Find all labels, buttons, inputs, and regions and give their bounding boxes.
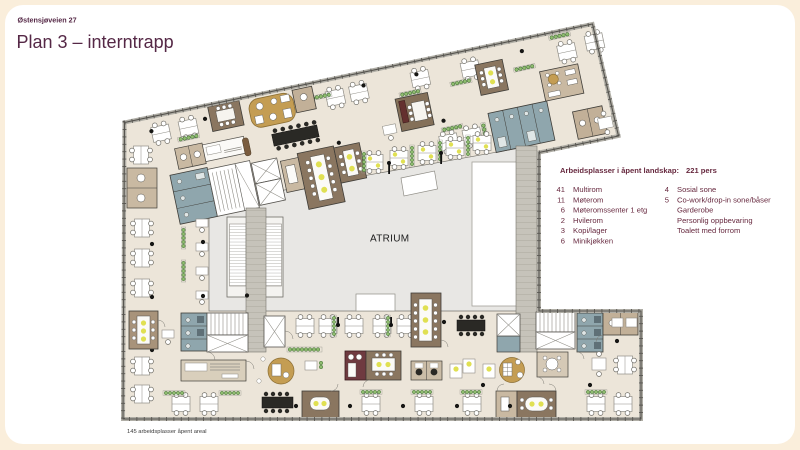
svg-text:5: 5 [665,195,669,204]
svg-text:ATRIUM: ATRIUM [370,234,409,245]
svg-text:41: 41 [557,185,565,194]
svg-text:Hvilerom: Hvilerom [573,216,603,225]
svg-text:6: 6 [561,206,565,215]
svg-text:Østensjøveien 27: Østensjøveien 27 [18,16,77,25]
svg-text:Toalett med forrom: Toalett med forrom [677,226,740,235]
svg-text:2: 2 [561,216,565,225]
svg-text:Garderobe: Garderobe [677,206,713,215]
svg-text:Møteromssenter 1 etg: Møteromssenter 1 etg [573,206,647,215]
svg-text:Plan 3 – interntrapp: Plan 3 – interntrapp [17,32,174,52]
svg-text:4: 4 [665,185,669,194]
svg-text:Arbeidsplasser i åpent landska: Arbeidsplasser i åpent landskap: [560,166,679,175]
svg-text:11: 11 [557,195,565,204]
svg-text:Personlig oppbevaring: Personlig oppbevaring [677,216,753,225]
svg-text:Sosial sone: Sosial sone [677,185,716,194]
svg-text:Minikjøkken: Minikjøkken [573,237,613,246]
svg-text:Kopi/lager: Kopi/lager [573,226,608,235]
svg-text:3: 3 [561,226,565,235]
svg-text:Co-work/drop-in sone/båser: Co-work/drop-in sone/båser [677,195,771,204]
svg-text:221 pers: 221 pers [686,166,717,175]
svg-text:6: 6 [561,237,565,246]
svg-text:145 arbeidsplasser åpent areal: 145 arbeidsplasser åpent areal [127,428,207,435]
svg-text:Multirom: Multirom [573,185,602,194]
svg-text:Møterom: Møterom [573,195,603,204]
